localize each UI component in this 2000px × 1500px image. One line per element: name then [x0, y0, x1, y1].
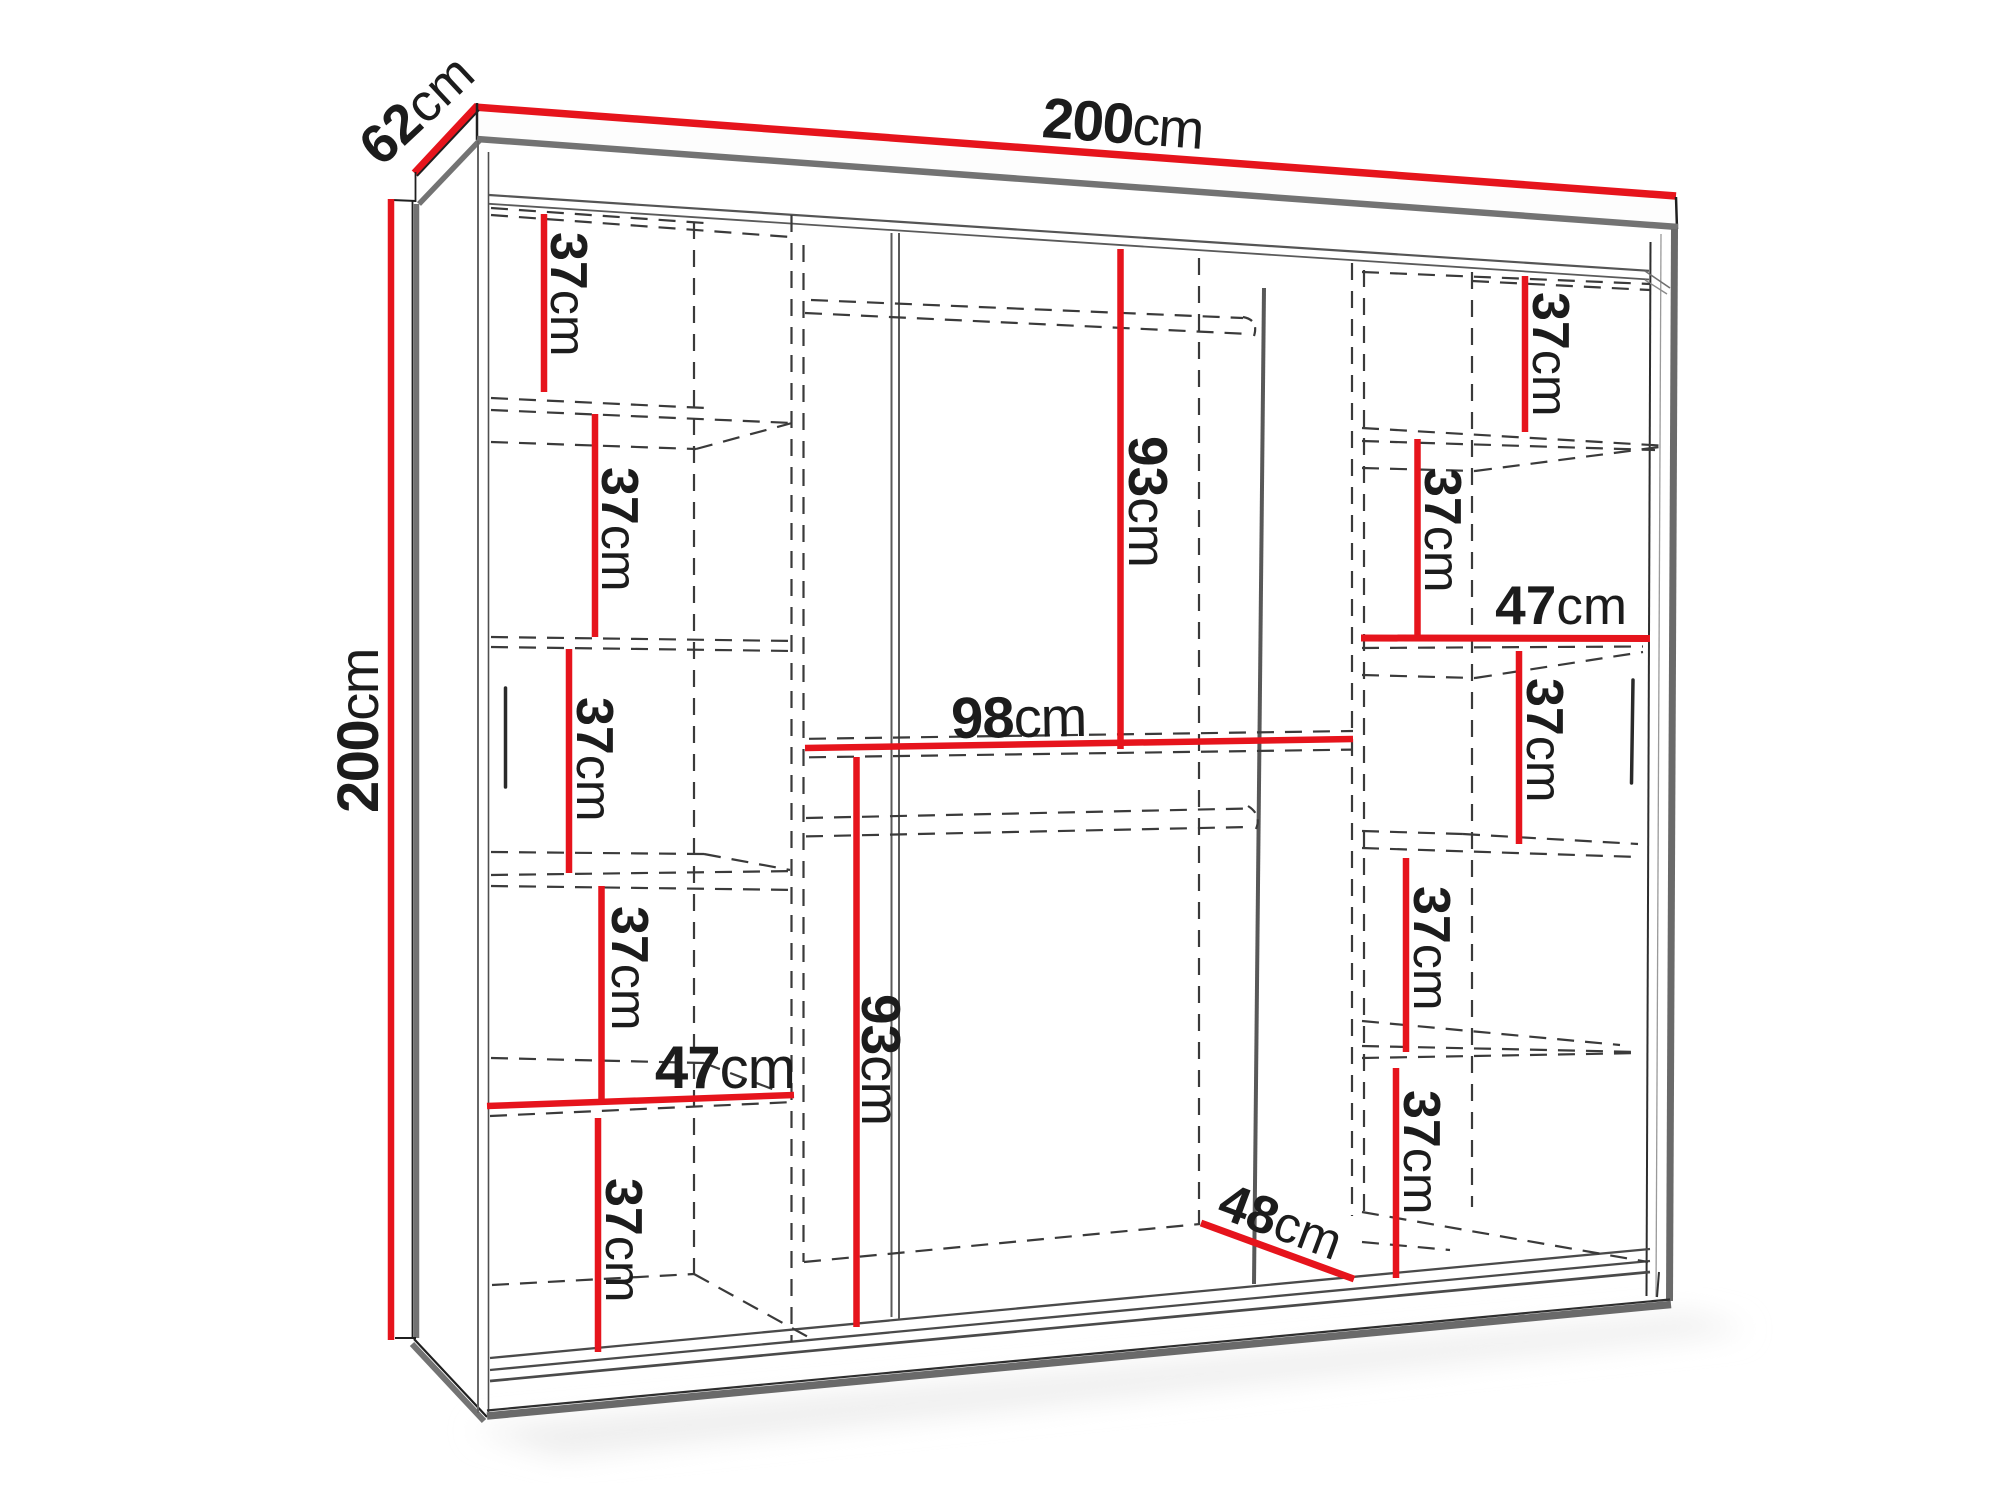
- svg-text:37cm: 37cm: [1392, 1090, 1450, 1215]
- svg-text:98cm: 98cm: [951, 684, 1087, 751]
- svg-text:37cm: 37cm: [600, 906, 658, 1031]
- svg-text:37cm: 37cm: [539, 232, 597, 357]
- svg-text:200cm: 200cm: [1040, 86, 1205, 162]
- svg-text:37cm: 37cm: [594, 1178, 652, 1303]
- svg-text:47cm: 47cm: [1495, 574, 1627, 636]
- svg-text:93cm: 93cm: [1117, 436, 1179, 568]
- svg-text:47cm: 47cm: [655, 1034, 795, 1101]
- svg-text:37cm: 37cm: [590, 467, 648, 592]
- svg-text:93cm: 93cm: [850, 994, 912, 1126]
- svg-text:37cm: 37cm: [1402, 886, 1460, 1011]
- svg-text:37cm: 37cm: [565, 697, 623, 822]
- svg-text:37cm: 37cm: [1515, 678, 1573, 803]
- svg-text:200cm: 200cm: [326, 649, 391, 813]
- svg-text:37cm: 37cm: [1521, 292, 1579, 417]
- svg-text:37cm: 37cm: [1413, 468, 1471, 593]
